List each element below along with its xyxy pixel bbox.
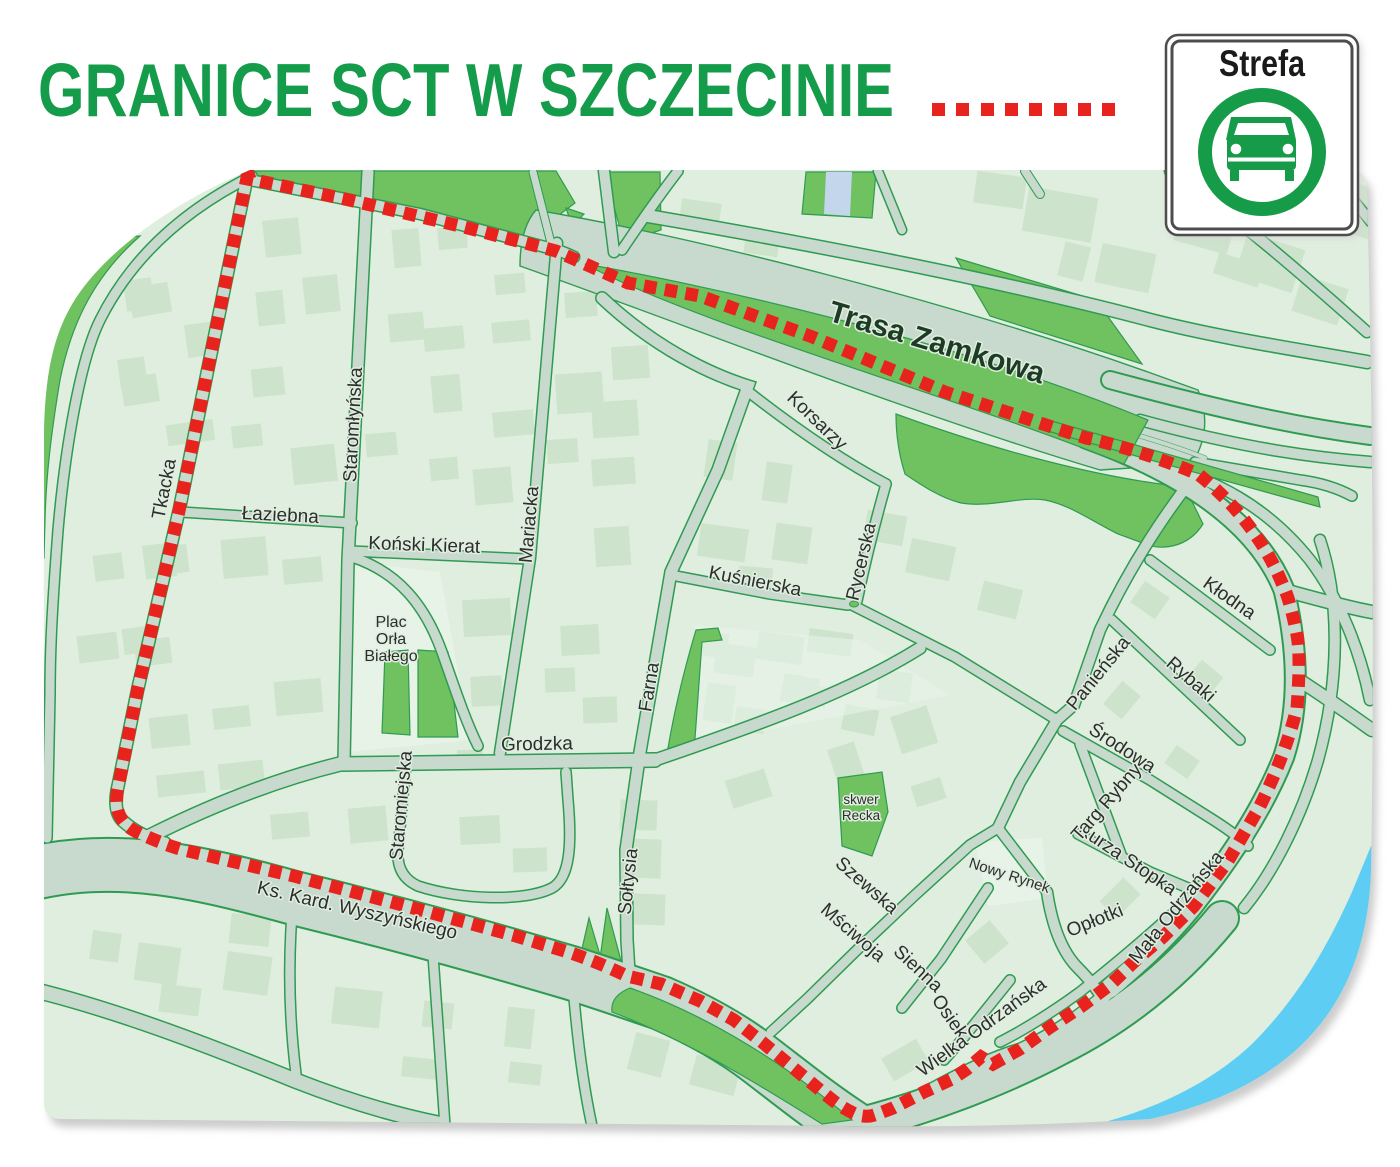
svg-text:Białego: Białego	[364, 648, 417, 665]
svg-text:Recka: Recka	[842, 808, 881, 823]
svg-text:skwer: skwer	[843, 792, 879, 807]
svg-text:Grodzka: Grodzka	[501, 733, 574, 755]
svg-text:Strefa: Strefa	[1219, 43, 1305, 84]
svg-text:Plac: Plac	[375, 614, 406, 631]
svg-text:Orła: Orła	[376, 631, 406, 648]
svg-text:GRANICE SCT W SZCZECINIE: GRANICE SCT W SZCZECINIE	[38, 48, 894, 132]
svg-text:Koński Kierat: Koński Kierat	[368, 533, 481, 558]
svg-text:Łaziebna: Łaziebna	[241, 503, 320, 528]
